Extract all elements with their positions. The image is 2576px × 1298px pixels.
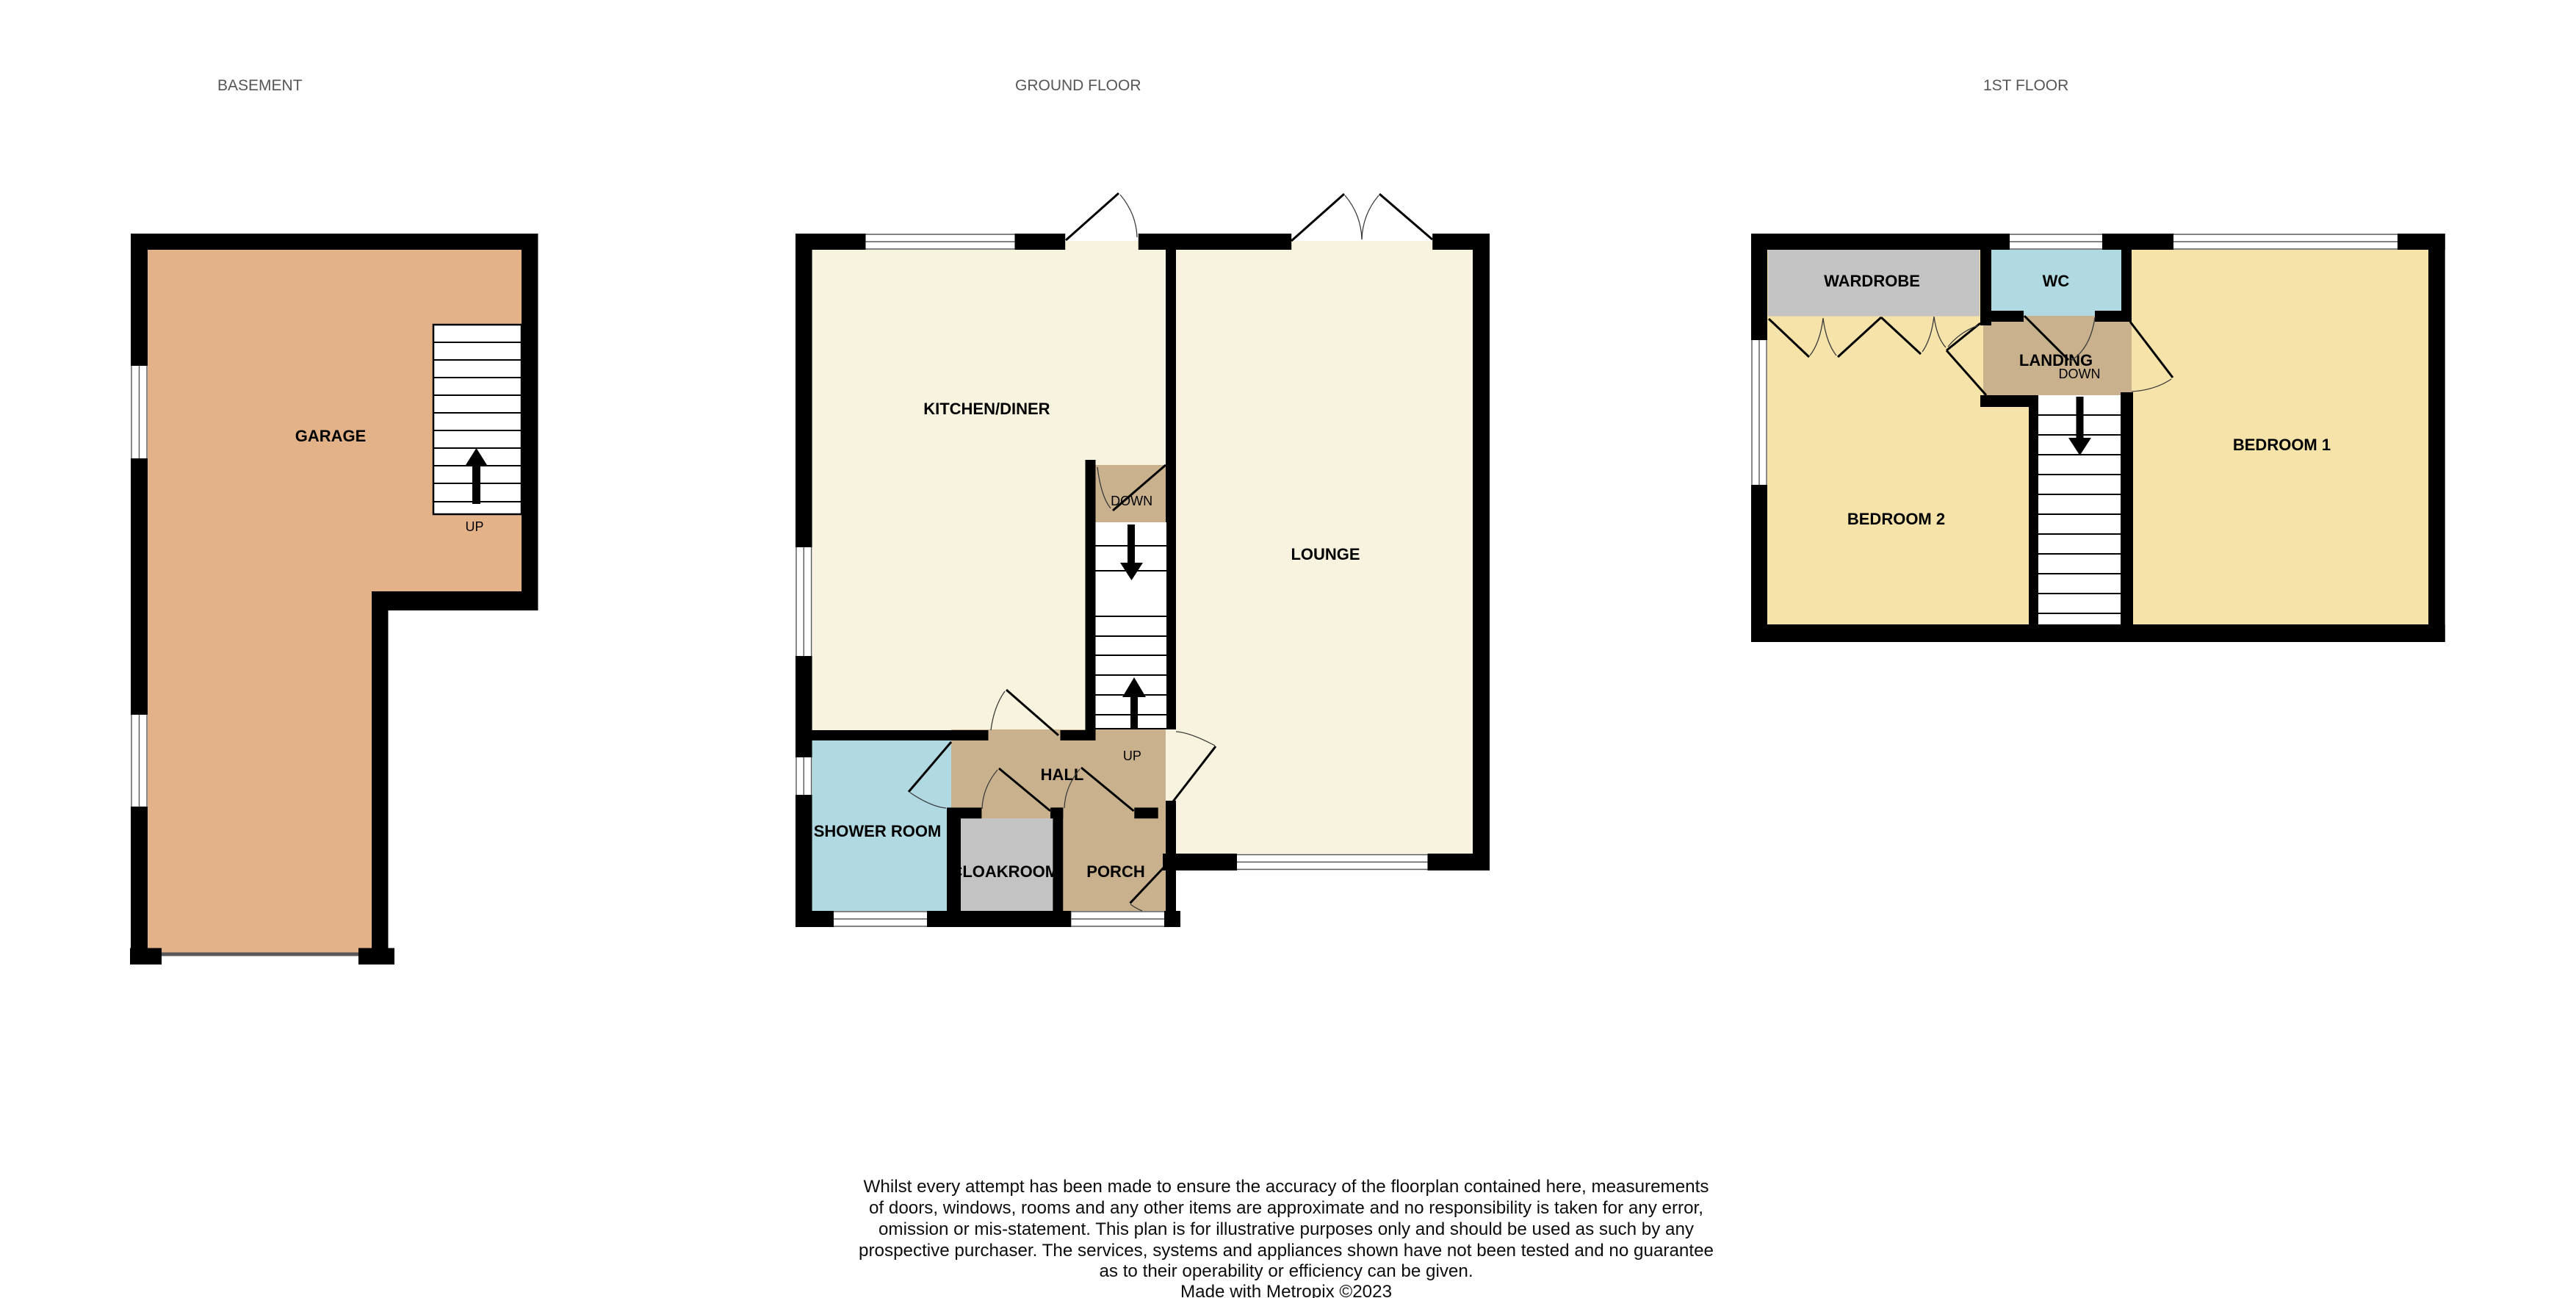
- svg-text:GROUND FLOOR: GROUND FLOOR: [1015, 77, 1141, 94]
- svg-text:SHOWER ROOM: SHOWER ROOM: [814, 822, 942, 840]
- svg-text:DOWN: DOWN: [2059, 367, 2101, 381]
- svg-text:as to their operability or eff: as to their operability or efficiency ca…: [1099, 1261, 1473, 1281]
- svg-text:GARAGE: GARAGE: [295, 427, 367, 445]
- svg-text:CLOAKROOM: CLOAKROOM: [950, 862, 1058, 881]
- svg-text:HALL: HALL: [1041, 765, 1084, 784]
- svg-text:BEDROOM 2: BEDROOM 2: [1847, 510, 1945, 528]
- svg-text:UP: UP: [465, 519, 483, 534]
- svg-text:WC: WC: [2043, 272, 2070, 290]
- svg-text:BEDROOM 1: BEDROOM 1: [2233, 436, 2331, 454]
- svg-text:prospective purchaser. The ser: prospective purchaser. The services, sys…: [859, 1241, 1714, 1261]
- svg-text:WARDROBE: WARDROBE: [1824, 272, 1920, 290]
- svg-text:omission or mis-statement. Thi: omission or mis-statement. This plan is …: [878, 1219, 1695, 1239]
- svg-text:LOUNGE: LOUNGE: [1291, 545, 1360, 563]
- svg-text:of doors, windows, rooms and a: of doors, windows, rooms and any other i…: [869, 1198, 1703, 1218]
- svg-text:UP: UP: [1123, 749, 1141, 763]
- svg-text:BASEMENT: BASEMENT: [217, 77, 303, 94]
- svg-text:Whilst every attempt has been: Whilst every attempt has been made to en…: [864, 1177, 1709, 1197]
- svg-text:PORCH: PORCH: [1086, 862, 1144, 881]
- svg-text:1ST FLOOR: 1ST FLOOR: [1983, 77, 2068, 94]
- svg-text:Made with Metropix ©2023: Made with Metropix ©2023: [1180, 1282, 1392, 1298]
- svg-text:KITCHEN/DINER: KITCHEN/DINER: [923, 400, 1050, 418]
